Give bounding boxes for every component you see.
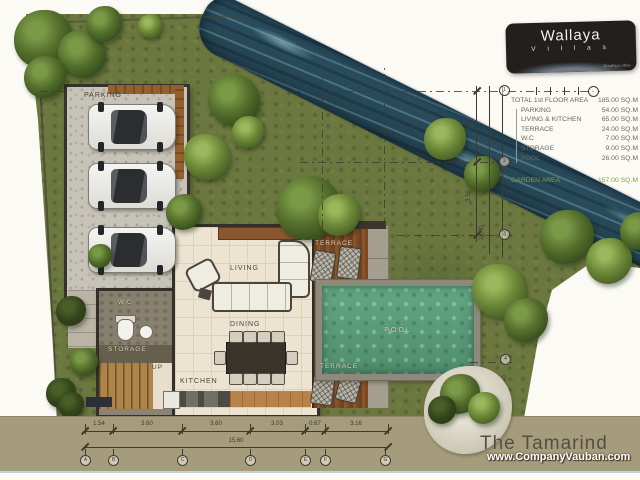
sun-lounger <box>336 246 362 280</box>
wc-room <box>99 291 173 345</box>
bottom-edge-line <box>0 471 640 473</box>
table-row: W.C7.00 SQ.M <box>511 134 638 144</box>
survey-cross <box>536 87 537 95</box>
row-label: POOL <box>521 154 540 164</box>
table-row: PARKING54.00 SQ.M <box>511 106 638 116</box>
up-label: UP <box>152 364 163 371</box>
fridge <box>163 391 180 409</box>
dining-chair <box>257 331 271 343</box>
row-value: 65.00 SQ.M <box>602 115 638 125</box>
toilet-icon <box>117 319 134 341</box>
dim-right-total: 10.40 <box>479 218 485 248</box>
dining-chair <box>271 373 285 385</box>
grid-line <box>40 91 66 92</box>
dining-chair <box>214 351 226 365</box>
grid-bubble-bottom: E <box>300 455 311 466</box>
dimension-line-bottom <box>85 431 388 432</box>
table-row: STORAGE9.00 SQ.M <box>511 144 638 154</box>
dim-bottom-6: 3.16 <box>344 421 368 427</box>
dim-bottom-2: 3.60 <box>135 421 159 427</box>
watermark-url: www.CompanyVauban.com <box>487 451 630 463</box>
dining-table <box>226 342 286 374</box>
logo-handle-text: @wallaya.villas <box>603 62 631 68</box>
tree <box>504 298 548 342</box>
site-plan-canvas: PARKING W.C STORAGE UP LIVING DINING KIT… <box>0 0 640 480</box>
wallaya-villas-logo: Wallaya V i l l a s @wallaya.villas <box>505 20 636 73</box>
dim-bottom-5: 0.67 <box>303 421 327 427</box>
terrace-label-bottom: TERRACE <box>320 363 358 370</box>
dim-right-1: 3.50 <box>466 110 472 140</box>
row-value: 54.00 SQ.M <box>602 106 638 116</box>
dining-chair <box>257 373 271 385</box>
car-roof <box>111 233 147 267</box>
row-label: STORAGE <box>521 144 554 154</box>
row-value: 7.00 SQ.M <box>606 134 639 144</box>
table-row: LIVING & KITCHEN65.00 SQ.M <box>511 115 638 125</box>
palm <box>184 134 230 180</box>
dining-chair <box>271 331 285 343</box>
dining-label: DINING <box>230 321 261 328</box>
dim-bottom-1: 1.54 <box>87 421 111 427</box>
garden-area-label: GARDEN AREA <box>511 176 560 186</box>
row-value: 26.00 SQ.M <box>602 154 638 164</box>
dim-bottom-total: 15.60 <box>222 438 250 444</box>
grid-bubble-right: 2 <box>499 156 510 167</box>
garden-area-value: 157.00 SQ.M <box>598 176 638 186</box>
dim-bottom-4: 3.03 <box>265 421 289 427</box>
table-row: POOL26.00 SQ.M <box>511 154 638 164</box>
table-bracket-line <box>516 109 517 163</box>
grid-bubble-bottom: D <box>245 455 256 466</box>
sofa-horizontal <box>212 282 292 312</box>
terrace-label-top: TERRACE <box>315 240 353 247</box>
garden-area-row: GARDEN AREA 157.00 SQ.M <box>511 176 638 186</box>
dim-bottom-3: 3.60 <box>204 421 228 427</box>
dining-chair <box>229 373 243 385</box>
grid-line <box>322 64 323 228</box>
grid-line <box>300 162 514 163</box>
pool-label: POOL <box>384 327 411 334</box>
row-label: LIVING & KITCHEN <box>521 115 581 125</box>
car-2 <box>88 163 176 209</box>
grid-line <box>292 91 600 92</box>
grid-bubble-right: 4 <box>500 354 511 365</box>
wc-label: W.C <box>118 300 132 306</box>
survey-cross <box>578 87 579 95</box>
total-area-value: 185.00 SQ.M <box>598 96 638 106</box>
car-roof <box>111 169 147 203</box>
grid-bubble-bottom: C <box>177 455 188 466</box>
area-table: TOTAL 1st FLOOR AREA 185.00 SQ.M PARKING… <box>511 96 638 186</box>
dining-chair <box>229 331 243 343</box>
kitchen-appliances <box>178 391 230 407</box>
dimension-line-total <box>85 447 388 448</box>
grid-line <box>384 64 385 226</box>
kitchen-counter <box>230 391 311 407</box>
parking-label: PARKING <box>84 92 122 99</box>
row-value: 24.00 SQ.M <box>602 125 638 135</box>
dimension-line-right <box>489 86 490 254</box>
dimension-line-right <box>476 86 477 242</box>
total-area-label: TOTAL 1st FLOOR AREA <box>511 96 588 106</box>
kitchen-label: KITCHEN <box>180 378 218 385</box>
wood-trim-right <box>175 85 184 179</box>
row-label: PARKING <box>521 106 551 116</box>
dim-right-2: 3.50 <box>466 181 472 211</box>
storage-label: STORAGE <box>108 346 147 353</box>
dining-chair <box>243 373 257 385</box>
grid-bubble-bottom: G <box>380 455 391 466</box>
grid-bubble-bottom: F <box>320 455 331 466</box>
car-1 <box>88 104 176 150</box>
living-label: LIVING <box>230 265 259 272</box>
entry-mat <box>86 397 112 407</box>
grid-line <box>396 235 514 236</box>
sink-icon <box>139 325 153 339</box>
row-label: W.C <box>521 134 534 144</box>
survey-cross <box>564 87 565 95</box>
row-label: TERRACE <box>521 125 553 135</box>
table-row: TERRACE24.00 SQ.M <box>511 125 638 135</box>
car-roof <box>111 110 147 144</box>
grid-bubble-bottom: B <box>108 455 119 466</box>
logo-brand-text: Wallaya <box>505 25 635 45</box>
area-table-header: TOTAL 1st FLOOR AREA 185.00 SQ.M <box>511 96 638 106</box>
grid-bubble-right: 3 <box>499 229 510 240</box>
grid-bubble-right: 1 <box>499 85 510 96</box>
row-value: 9.00 SQ.M <box>606 144 639 154</box>
survey-cross <box>550 87 551 95</box>
grid-bubble-bottom: A <box>80 455 91 466</box>
dining-chair <box>286 351 298 365</box>
dining-chair <box>243 331 257 343</box>
